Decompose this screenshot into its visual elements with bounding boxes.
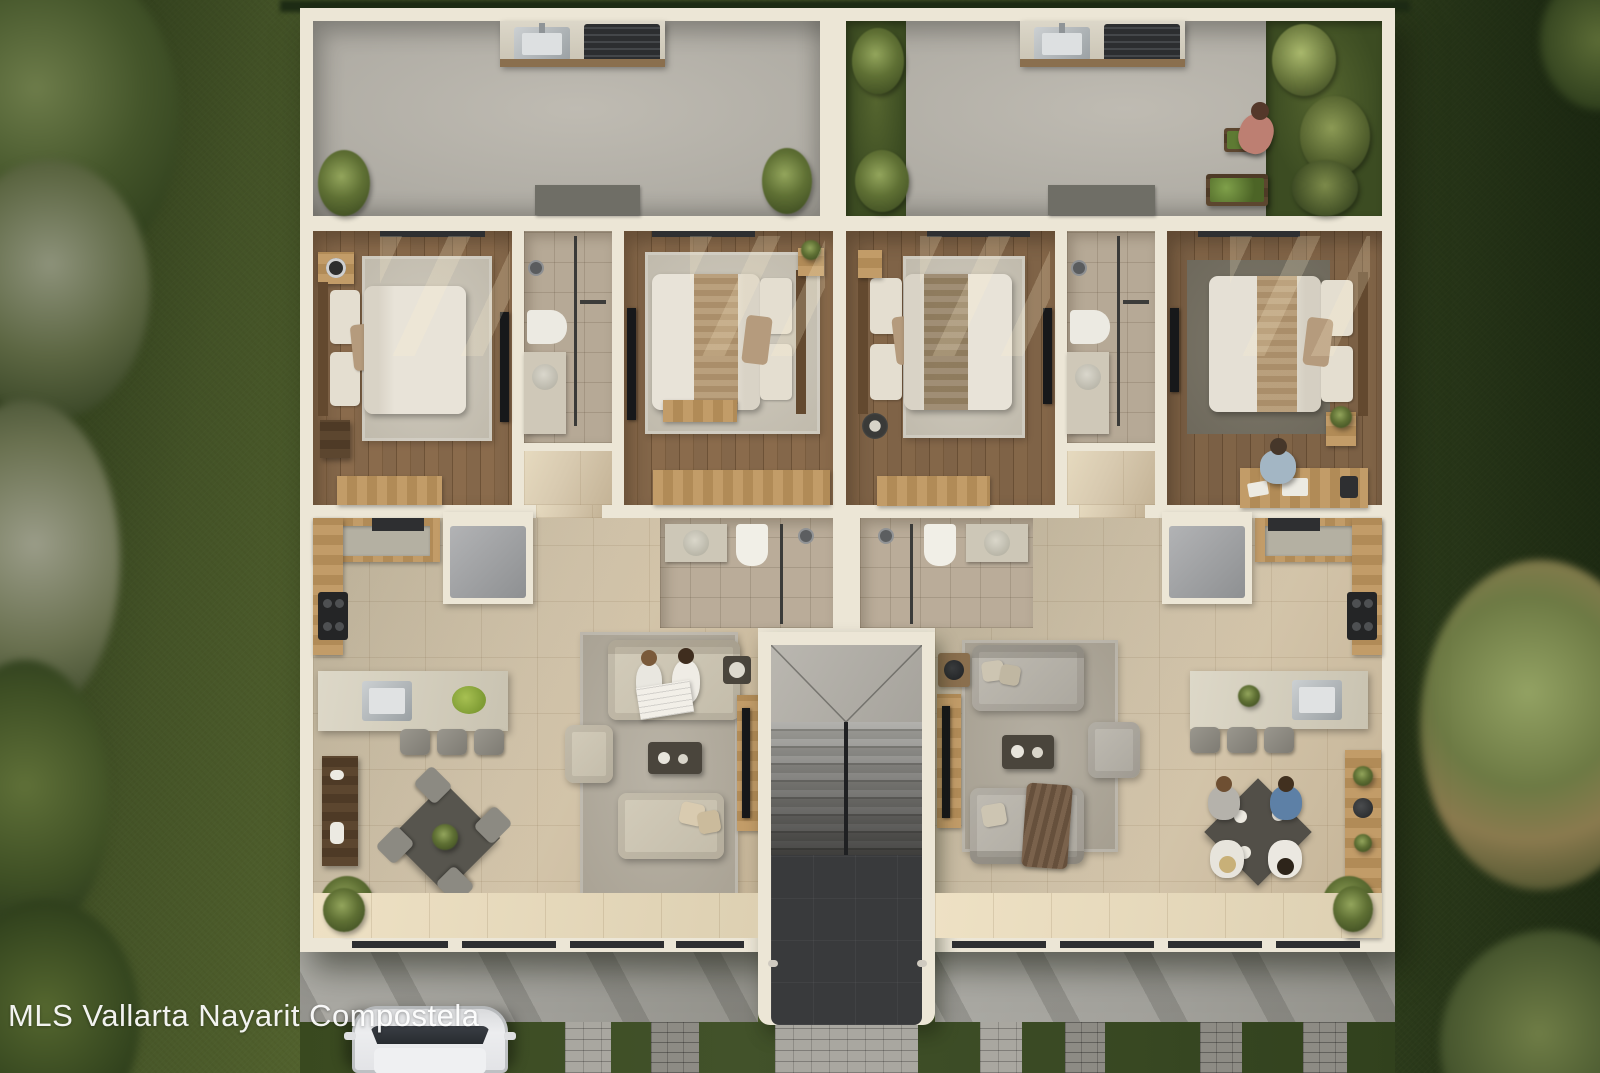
paver-strip [980,1022,1022,1073]
right-stove [1347,592,1377,640]
towel-bar [1123,300,1149,304]
left-range-hood [372,518,424,531]
burner [335,599,344,608]
outdoor-grill [584,24,660,62]
bath-vanity [524,352,566,434]
burner [1364,599,1373,608]
bath-sink [532,364,558,390]
right-island [1190,671,1368,729]
left-patio-plant [323,888,365,932]
sliding-door [352,941,448,948]
sofa-backrest [972,645,1084,658]
garden-plant [1272,24,1336,96]
terrace-door-lintel [1198,231,1300,237]
person-head [1219,856,1236,873]
terrace-palm [762,148,812,214]
sink-basin [369,688,405,714]
desk-monitor [1340,476,1358,498]
terrace-doormat [535,185,640,215]
shower-head [800,530,812,542]
sliding-door [1276,941,1360,948]
right-sofa-top [972,645,1084,711]
diner-person [1266,832,1304,882]
car-roof [374,1048,486,1073]
bar-stool [1227,727,1257,753]
bedroom-3-bed [858,268,1016,416]
car-mirror-right [504,1032,516,1040]
diner-person [1208,832,1246,882]
left-patio [313,893,758,938]
right-lawn-shadow [1395,0,1600,1073]
planter-stand [938,653,970,687]
terrace-door-lintel [380,231,485,237]
side-table-tray [729,662,745,678]
sofa-throw-blanket [1021,782,1073,869]
person-head [678,648,694,664]
desk-person-head [1270,438,1287,455]
bar-stool [474,729,504,755]
entry-walkway [775,1025,918,1073]
vegetable-planter [1206,174,1268,206]
right-fridge-enclosure [1162,512,1252,604]
bath-vanity [1067,352,1109,434]
sideboard-item [330,770,344,780]
island-sink [1292,680,1342,720]
burner [1364,622,1373,631]
bedroom-2-tv [627,308,636,420]
shower-glass [910,524,913,624]
diner-person [1268,776,1304,822]
bedroom-1-bed [318,280,468,418]
coffee-cup [1032,747,1043,758]
bed-throw [694,274,738,410]
sideboard-plant [1353,766,1373,786]
garden-plant [852,28,904,94]
outdoor-kitchen-right [1020,21,1185,66]
bedroom-4-bed [1205,270,1368,418]
sliding-door [570,941,664,948]
shower-glass [1117,236,1120,426]
left-fridge [450,526,526,598]
bedroom-3-tv [1043,308,1052,404]
outdoor-kitchen-left [500,21,665,66]
nightstand-plant [801,240,821,260]
bed-headboard [1358,272,1368,416]
terrace-door-lintel [652,231,755,237]
left-corridor-opening [536,505,602,518]
burner [335,622,344,631]
bedroom-4-side-table [1326,412,1356,446]
island-plant [1238,685,1260,707]
bar-stool [400,729,430,755]
coffee-cup [658,752,670,764]
sliding-door [462,941,556,948]
side-table-plant [1330,406,1352,428]
stair-flight-right [848,722,922,855]
bedroom-3-round-chair [862,413,888,439]
left-loveseat [618,793,724,859]
toilet [527,310,567,344]
right-tv [942,706,950,818]
sliding-door [952,941,1046,948]
bedroom-2-dresser [653,470,830,505]
sliding-door [1060,941,1154,948]
bed-headboard [796,270,806,414]
hall-2 [1067,451,1155,505]
planter-greens [1210,178,1264,202]
outdoor-grill [1104,24,1180,62]
alarm-clock [326,258,346,278]
burner [1352,599,1361,608]
sofa-pillow [998,663,1021,686]
entry-door-handle-left [768,960,778,967]
toilet [736,524,768,566]
terrace-door-lintel [927,231,1030,237]
outdoor-sink [1034,27,1090,61]
paver-strip [1065,1022,1105,1073]
sink-basin [1299,687,1335,713]
stair-flight-left [771,722,844,855]
left-sideboard [322,756,358,866]
sink-basin [522,33,562,55]
bar-stool [1190,727,1220,753]
bedroom-1-tv [500,312,509,422]
coffee-grinder [1353,798,1373,818]
stair-lower-landing [771,855,922,1025]
burner [1352,622,1361,631]
paver-strip [1303,1022,1347,1073]
left-armchair [565,725,613,783]
coffee-cup [678,754,688,764]
burner [323,622,332,631]
gardener-person [1233,100,1277,160]
watermark-text: MLS Vallarta Nayarit Compostela [8,998,480,1034]
bathroom-4 [860,518,1033,628]
bath-sink [1075,364,1101,390]
bedroom-2-bench [663,400,737,422]
shower-glass [780,524,783,624]
bath-counter [665,524,727,562]
bedroom-3-nightstand [858,250,882,278]
bedroom-1-dresser [337,476,442,505]
bar-stool [1264,727,1294,753]
diner-person [1206,776,1242,822]
sofa-pillow [980,802,1007,828]
stair-center-rail [844,722,848,855]
bed-throw [924,274,968,410]
planter-pot [944,660,964,680]
person-head [1216,776,1232,792]
towel-bar [580,300,606,304]
terrace-palm [318,150,370,216]
hall-1 [524,451,612,505]
bedroom-1-bench [320,420,350,458]
terrace-doormat [1048,185,1155,215]
sink-faucet [539,23,545,33]
coffee-cup [1011,745,1024,758]
right-sofa-bottom [970,788,1084,864]
sliding-door [676,941,744,948]
bed-throw [1257,276,1297,412]
left-coffee-table [648,742,702,774]
gardener-head [1251,102,1269,120]
stair-upper-landing [771,645,922,722]
fruit-bowl [452,686,486,714]
paver-strip [1200,1022,1242,1073]
right-armchair [1088,722,1140,778]
outdoor-sink [514,27,570,61]
bathroom-3 [660,518,833,628]
garden-plant [1292,160,1358,216]
person-head [641,650,657,666]
sink-basin [1042,33,1082,55]
shower-glass [574,236,577,426]
burner [323,599,332,608]
island-sink [362,681,412,721]
desk-person [1256,436,1300,488]
dining-centerpiece [432,824,458,850]
right-patio [935,893,1382,938]
shower-head [530,262,542,274]
sideboard-item [330,822,344,844]
paver-strip [565,1022,611,1073]
paver-strip [651,1022,699,1073]
right-corridor-opening [1079,505,1145,518]
person-head [1277,858,1294,875]
garden-plant [855,150,909,212]
bedroom-2-bed [648,268,806,416]
bedroom-3-dresser [877,476,990,506]
bed-headboard [858,270,868,414]
left-tv [742,708,750,818]
sideboard-plant [1354,834,1372,852]
left-fridge-enclosure [443,512,533,604]
loveseat-pillow [696,809,721,834]
kitchen-wood-edge [1020,59,1185,67]
bedroom-4-tv [1170,308,1179,392]
right-patio-palm [1333,886,1373,932]
entry-door-handle-right [917,960,927,967]
toilet [1070,310,1110,344]
aerial-floorplan-render: MLS Vallarta Nayarit Compostela [0,0,1600,1073]
left-stove [318,592,348,640]
kitchen-wood-edge [500,59,665,67]
left-island [318,671,508,731]
bedroom-2-nightstand [798,248,824,276]
right-range-hood [1268,518,1320,531]
right-fridge [1169,526,1245,598]
bath-sink [683,530,709,556]
sliding-door [1168,941,1262,948]
sink-faucet [1059,23,1065,33]
toilet [924,524,956,566]
bed-duvet [364,286,466,414]
shower-head [880,530,892,542]
shower-head [1073,262,1085,274]
bath-counter [966,524,1028,562]
bath-sink [984,530,1010,556]
person-head [1278,776,1294,792]
right-coffee-table [1002,735,1054,769]
bar-stool [437,729,467,755]
desk-person-body [1260,450,1296,484]
landing-joint-lines [771,645,922,722]
bed-headboard [318,282,328,416]
left-side-table [723,656,751,684]
